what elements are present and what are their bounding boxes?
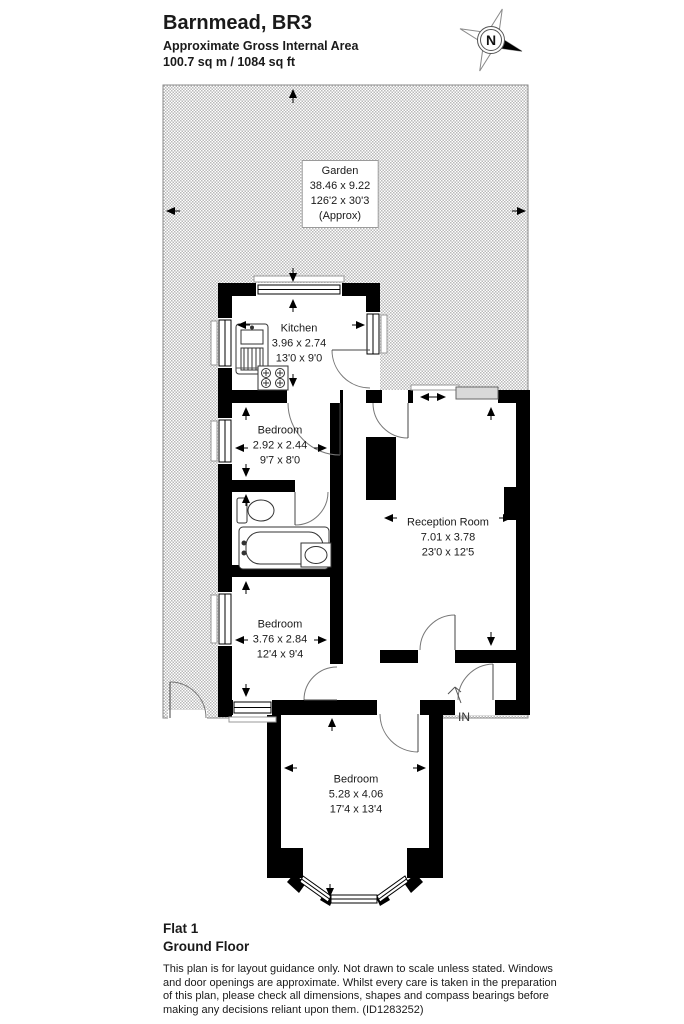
bedroom-3-label: Bedroom 5.28 x 4.06 17'4 x 13'4 — [329, 773, 383, 818]
garden-approx: (Approx) — [310, 209, 371, 224]
entrance-label: IN — [458, 710, 470, 724]
basin-icon — [301, 543, 331, 567]
toilet-icon — [237, 498, 274, 523]
room-name: Kitchen — [272, 322, 326, 337]
room-metric: 2.92 x 2.44 — [253, 439, 307, 454]
floor-plan-svg — [0, 0, 684, 1024]
garden-label: Garden 38.46 x 9.22 126'2 x 30'3 (Approx… — [302, 160, 379, 228]
reception-room-label: Reception Room 7.01 x 3.78 23'0 x 12'5 — [407, 516, 489, 561]
room-imperial: 13'0 x 9'0 — [272, 352, 326, 367]
room-imperial: 12'4 x 9'4 — [253, 648, 307, 663]
disclaimer-text: This plan is for layout guidance only. N… — [163, 963, 565, 1017]
garden-imperial: 126'2 x 30'3 — [310, 194, 371, 209]
room-imperial: 17'4 x 13'4 — [329, 803, 383, 818]
hob-icon — [258, 366, 288, 390]
room-name: Bedroom — [329, 773, 383, 788]
flat-label: Flat 1 — [163, 920, 198, 938]
room-name: Bedroom — [253, 618, 307, 633]
garden-metric: 38.46 x 9.22 — [310, 179, 371, 194]
room-name: Reception Room — [407, 516, 489, 531]
room-metric: 7.01 x 3.78 — [407, 531, 489, 546]
kitchen-label: Kitchen 3.96 x 2.74 13'0 x 9'0 — [272, 322, 326, 367]
room-imperial: 23'0 x 12'5 — [407, 546, 489, 561]
floor-label: Ground Floor — [163, 938, 249, 956]
bedroom-1-label: Bedroom 2.92 x 2.44 9'7 x 8'0 — [253, 424, 307, 469]
room-name: Bedroom — [253, 424, 307, 439]
garden-name: Garden — [310, 164, 371, 179]
room-metric: 5.28 x 4.06 — [329, 788, 383, 803]
room-metric: 3.76 x 2.84 — [253, 633, 307, 648]
room-metric: 3.96 x 2.74 — [272, 337, 326, 352]
bedroom-2-label: Bedroom 3.76 x 2.84 12'4 x 9'4 — [253, 618, 307, 663]
floorplan-page: Barnmead, BR3 Approximate Gross Internal… — [0, 0, 684, 1024]
room-imperial: 9'7 x 8'0 — [253, 454, 307, 469]
